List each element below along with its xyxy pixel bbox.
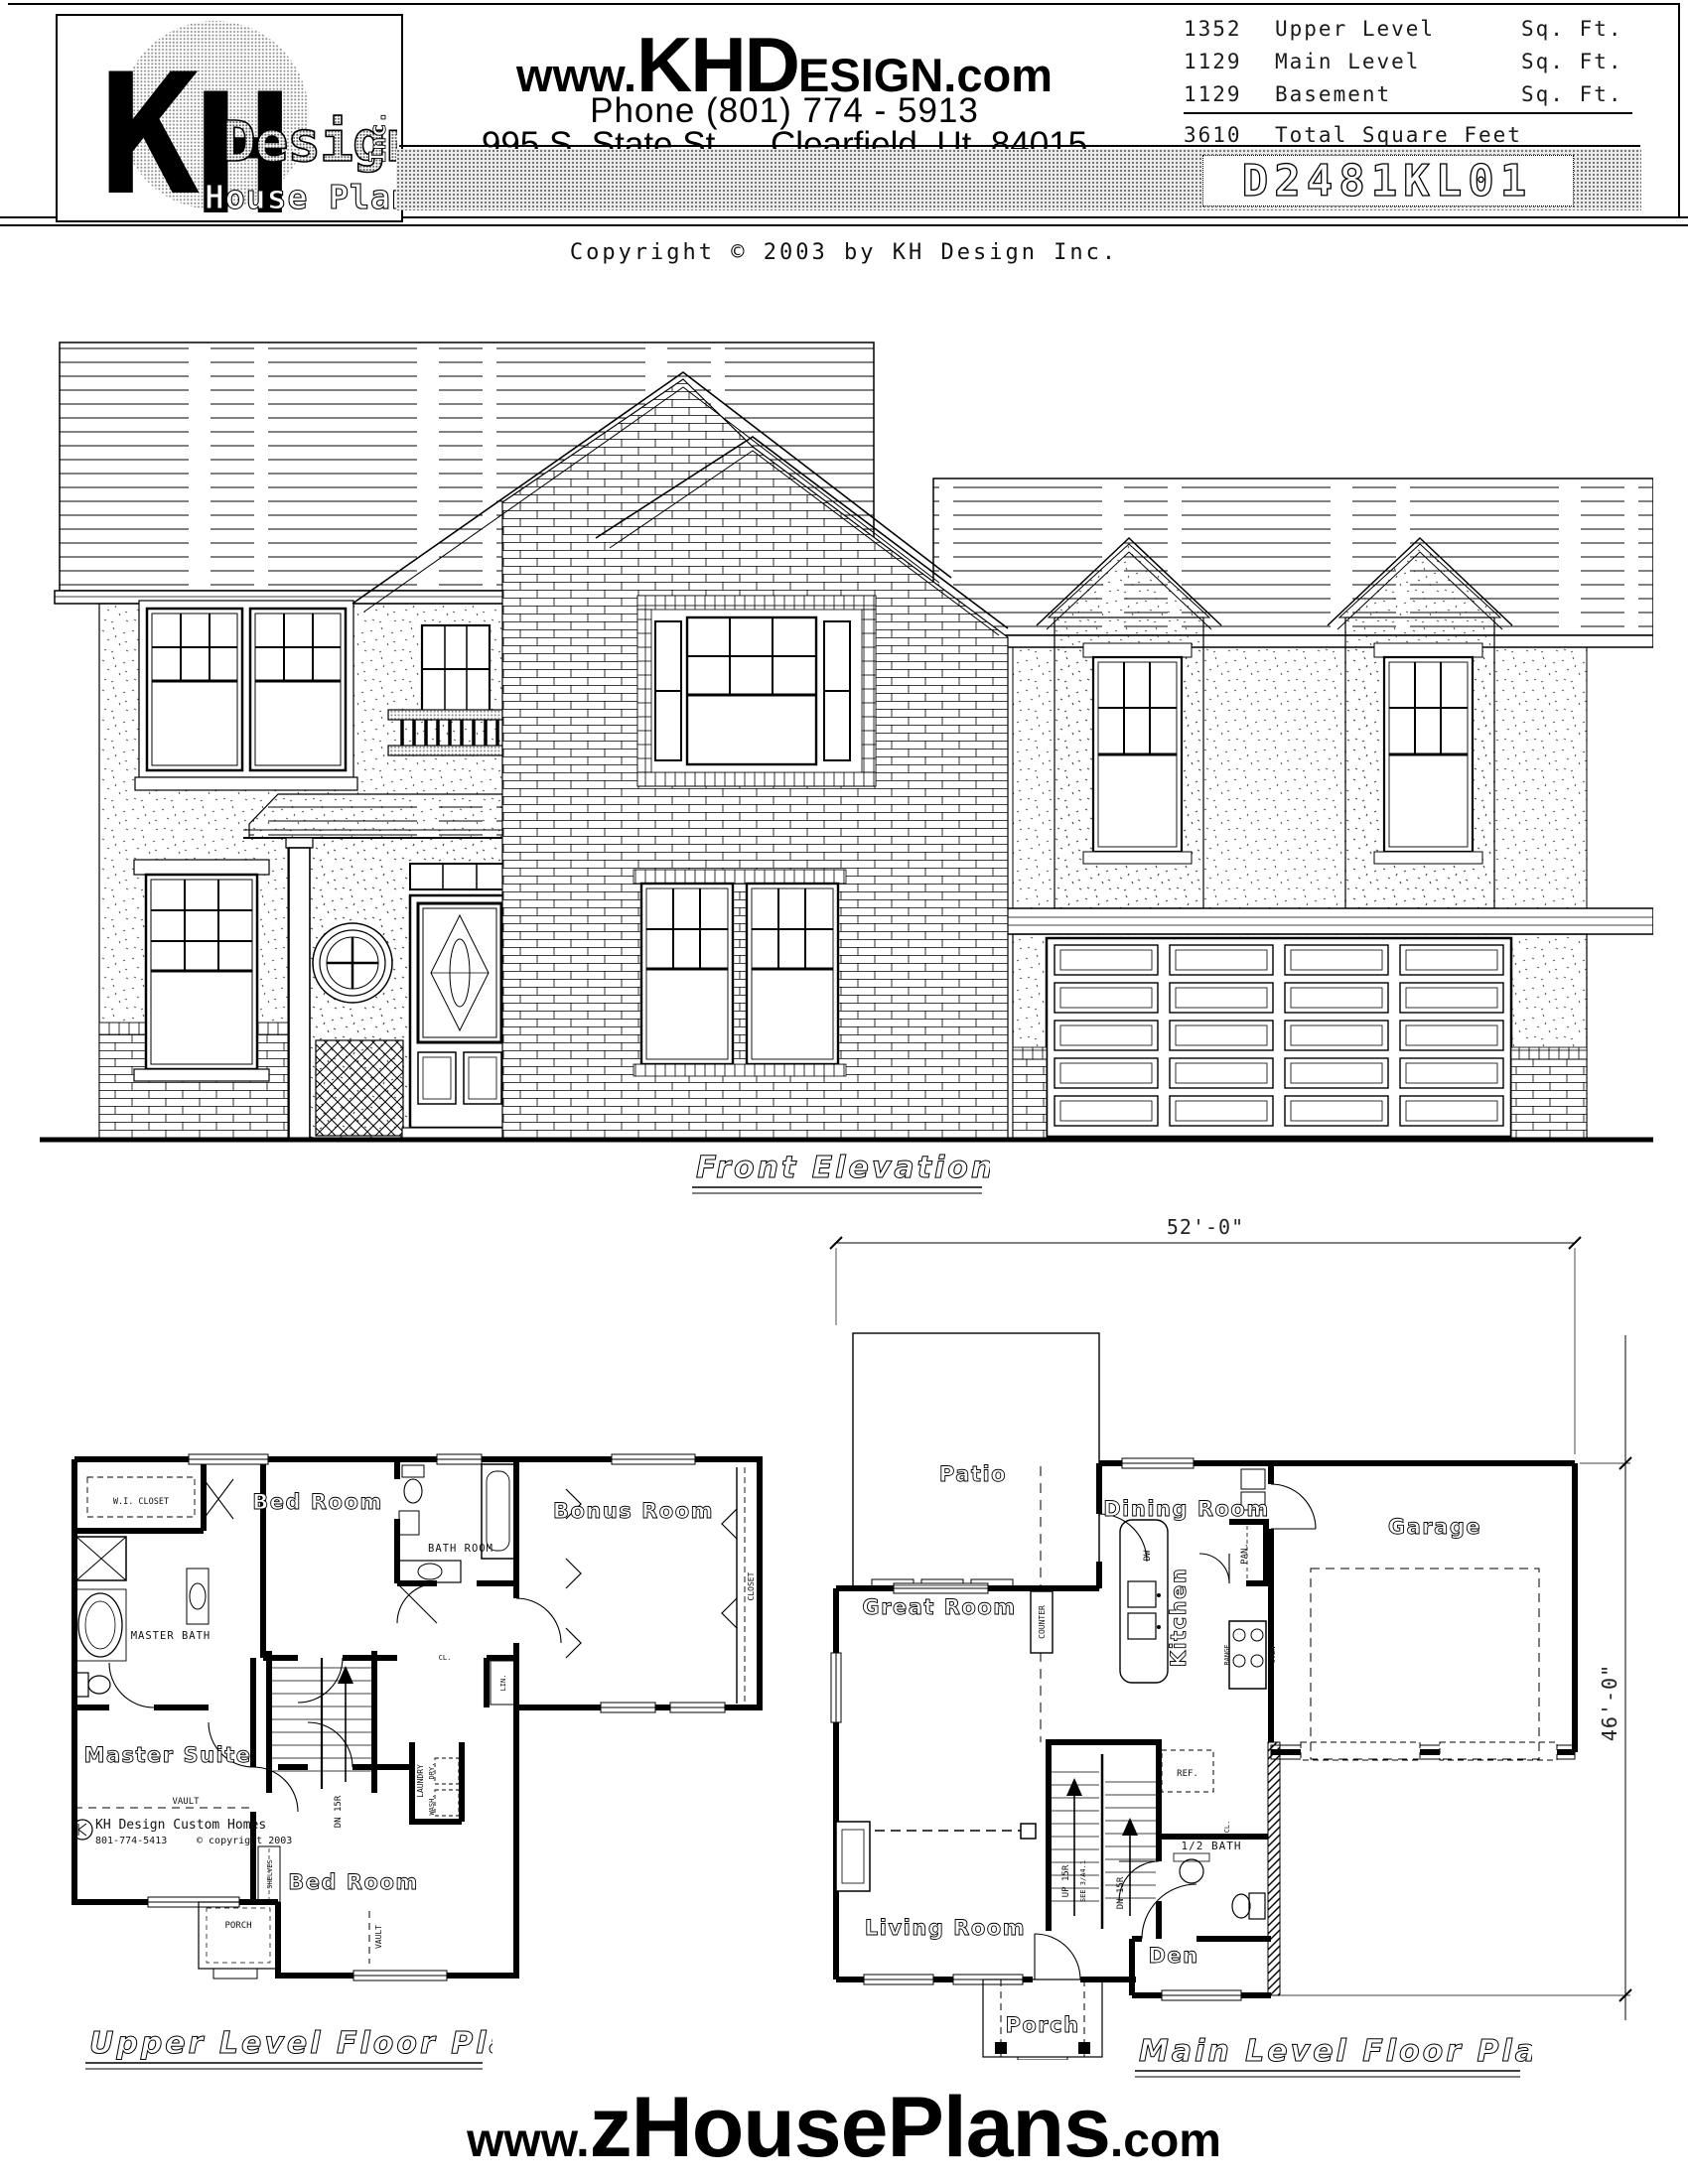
logo-tagline: House Plans (205, 178, 397, 216)
main-plan-caption: Main Level Floor Plan (1135, 2033, 1532, 2085)
round-window (313, 923, 392, 1003)
pantry-label: PAN. (1240, 1543, 1250, 1565)
room-label-porch: Porch (1005, 2013, 1079, 2037)
sqft-total-value: 3610 (1184, 123, 1275, 147)
footer-post: .com (1110, 2115, 1221, 2167)
garage-door (1047, 938, 1511, 1137)
sqft-unit: Sq. Ft. (1521, 17, 1640, 41)
zhouseplans-footer: www.zHousePlans.com (0, 2079, 1688, 2177)
laundry-label: LAUNDRY (416, 1764, 425, 1798)
room-label-master: Master Suite (83, 1743, 251, 1767)
front-door (402, 895, 517, 1140)
up-label: UP 15R (1061, 1864, 1071, 1897)
hatched-wall (1268, 1742, 1280, 1995)
height-dimension: 46'-0" (1281, 1335, 1631, 2020)
sqft-label: Main Level (1275, 50, 1521, 73)
room-label-kitchen: Kitchen (1167, 1568, 1191, 1668)
stamp-name: KH Design Custom Homes (95, 1818, 266, 1833)
upper-plan-caption: Upper Level Floor Plan (85, 2025, 492, 2077)
copyright-line: Copyright © 2003 by KH Design Inc. (0, 240, 1688, 265)
designer-stamp: KH Design Custom Homes 801-774-5413 © co… (72, 1818, 292, 1846)
plan-number-text: D2481KL01 (1242, 156, 1532, 204)
table-rule (1184, 112, 1632, 114)
stamp-phone: 801-774-5413 (95, 1836, 167, 1846)
sqft-unit: Sq. Ft. (1521, 50, 1640, 73)
garage-ceiling-dashed (1311, 1569, 1539, 1759)
plan-number-art: D2481KL01 (1203, 156, 1571, 204)
caption-text: Main Level Floor Plan (1139, 2034, 1532, 2069)
room-label-den: Den (1148, 1944, 1198, 1968)
wi-closet-label: W.I. CLOSET (113, 1497, 169, 1507)
caption-text: Upper Level Floor Plan (89, 2026, 492, 2061)
sqft-label: Basement (1275, 82, 1521, 106)
dry-label: DRY. (428, 1763, 436, 1780)
room-label-half-bath: 1/2 BATH (1182, 1840, 1242, 1852)
plan-number-box: D2481KL01 (1202, 155, 1574, 206)
sqft-unit: Sq. Ft. (1521, 82, 1640, 106)
lattice-panel (316, 1040, 403, 1136)
lin-label: LIN. (499, 1675, 507, 1692)
sqft-value: 1129 (1184, 82, 1275, 106)
garage-door-opening (1301, 1742, 1420, 1760)
shelves-label: SHELVES (266, 1859, 274, 1889)
sqft-label: Upper Level (1275, 17, 1521, 41)
plan-number-bar: D2481KL01 (396, 149, 1641, 210)
table-total-row: 3610 Total Square Feet (1184, 118, 1650, 151)
room-label-bonus: Bonus Room (553, 1499, 714, 1523)
master-bath-fixtures (74, 1477, 209, 1697)
oven-label: OVEN (1269, 1647, 1277, 1664)
front-porch: Porch (983, 1979, 1102, 2060)
logo-art: K H Design Inc. House Plans (58, 16, 397, 216)
fireplace (836, 1822, 870, 1891)
stamp-note: © copyright 2003 (197, 1836, 292, 1846)
room-label-upper-porch: PORCH (224, 1921, 251, 1931)
header-right-border (1678, 3, 1680, 216)
room-label-bed-bottom: Bed Room (288, 1870, 419, 1894)
vault-bed-label: VAULT (374, 1925, 383, 1949)
upper-stairs: DN 15R (272, 1658, 371, 1828)
table-row: 1352 Upper Level Sq. Ft. (1184, 12, 1650, 45)
upper-porch: PORCH (199, 1902, 278, 1979)
caption-text: Front Elevation (696, 1151, 990, 1185)
header-bottom-border-2 (0, 224, 1688, 226)
upper-level-floor-plan: DN 15R LAUNDRY DRY. WASH. CLOSET LIN. CL… (50, 1420, 774, 2015)
master-bath-label: MASTER BATH (131, 1630, 211, 1642)
footer-pre: www. (467, 2115, 590, 2167)
front-elevation-drawing (40, 328, 1653, 1152)
header-top-border (8, 3, 1680, 5)
ref-label: REF. (1177, 1769, 1198, 1779)
sqft-total-label: Total Square Feet (1275, 123, 1632, 147)
brick-pier-left (1013, 1059, 1047, 1140)
see-label: SEE 3/A4.1 (1079, 1860, 1087, 1902)
vault-master-label: VAULT (172, 1797, 200, 1807)
room-label-dining: Dining Room (1103, 1497, 1269, 1521)
counter-label: COUNTER (1038, 1605, 1047, 1639)
upper-bath-fixtures (399, 1464, 514, 1582)
room-label-garage: Garage (1388, 1515, 1481, 1539)
dim-height-text: 46'-0" (1598, 1664, 1621, 1741)
room-label-living: Living Room (865, 1916, 1026, 1940)
plan-sheet: K H Design Inc. House Plans www.KHDESIGN… (0, 0, 1688, 2184)
patio: Patio (853, 1333, 1099, 1589)
width-dimension: 52'-0" (830, 1215, 1581, 1454)
wash-label: WASH. (428, 1794, 436, 1815)
closet-label: CLOSET (747, 1571, 756, 1600)
dim-width-text: 52'-0" (1167, 1215, 1244, 1239)
main-stairs: UP 15R SEE 3/A4.1 DN 15R (1052, 1754, 1156, 1929)
dn-label-upper: DN 15R (334, 1795, 344, 1828)
center-upper-window (637, 596, 876, 786)
room-label-patio: Patio (939, 1462, 1007, 1486)
right-roof (928, 478, 1653, 647)
square-footage-table: 1352 Upper Level Sq. Ft. 1129 Main Level… (1184, 12, 1650, 151)
upper-left-windows (135, 601, 357, 790)
transom-window (410, 864, 509, 889)
logo-kh-k: K (99, 38, 200, 216)
logo-inc-text: Inc. (366, 111, 391, 164)
footer-big: zHousePlans (590, 2080, 1110, 2175)
garage (993, 908, 1653, 1140)
laundry: LAUNDRY DRY. WASH. (416, 1758, 459, 1816)
main-level-floor-plan: 52'-0" 46'-0" Patio (804, 1186, 1678, 2060)
dw-label: DW (1143, 1550, 1153, 1561)
sqft-value: 1352 (1184, 17, 1275, 41)
cl-label: CL. (1223, 1821, 1231, 1834)
table-row: 1129 Main Level Sq. Ft. (1184, 45, 1650, 77)
sqft-value: 1129 (1184, 50, 1275, 73)
cl-label-upper: CL. (439, 1654, 452, 1662)
garage-eave (993, 908, 1653, 934)
table-row: 1129 Basement Sq. Ft. (1184, 77, 1650, 110)
brick-pier-right (1511, 1059, 1587, 1140)
kh-design-logo: K H Design Inc. House Plans (56, 14, 403, 222)
lower-left-window (134, 860, 269, 1081)
room-label-great: Great Room (862, 1595, 1016, 1619)
room-label-bed-top: Bed Room (252, 1490, 383, 1514)
range-label: RANGE (1223, 1644, 1231, 1665)
bath-room-label: BATH ROOM (428, 1543, 493, 1555)
